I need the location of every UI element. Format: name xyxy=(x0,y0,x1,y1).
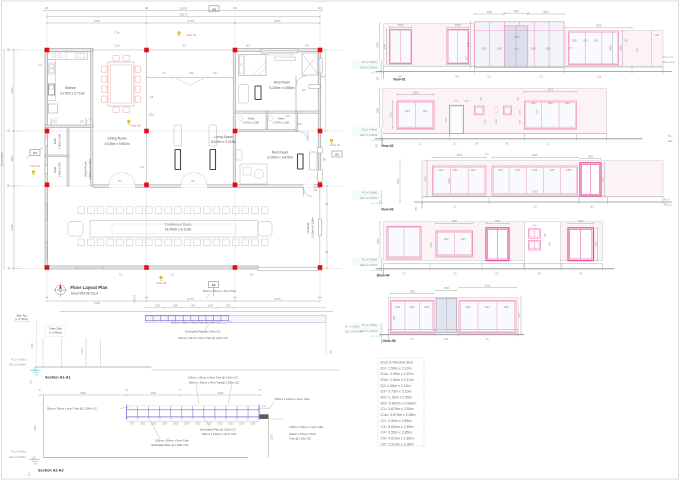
svg-text:2560: 2560 xyxy=(519,312,521,318)
svg-text:6400: 6400 xyxy=(80,392,86,395)
svg-text:EGL (± 0.00m): EGL (± 0.00m) xyxy=(360,263,377,267)
svg-text:6375: 6375 xyxy=(274,297,281,301)
svg-text:1000: 1000 xyxy=(239,424,245,426)
svg-text:D1a= 1.50m x 2.67m: D1a= 1.50m x 2.67m xyxy=(381,372,414,376)
svg-text:1.650m x 4.125m: 1.650m x 4.125m xyxy=(88,158,92,180)
svg-text:6.250m x 3.875m: 6.250m x 3.875m xyxy=(267,156,292,160)
svg-text:1050: 1050 xyxy=(409,307,415,309)
svg-text:Conference Room: Conference Room xyxy=(165,222,192,226)
svg-text:C2: C2 xyxy=(325,202,329,206)
svg-text:6775: 6775 xyxy=(188,297,195,301)
svg-text:D3: D3 xyxy=(314,188,318,192)
svg-text:EGL (± 0.00m): EGL (± 0.00m) xyxy=(360,329,377,333)
svg-text:700-600: 700-600 xyxy=(135,294,137,303)
svg-text:100mm x 50mm x 5mm: 100mm x 50mm x 5mm xyxy=(289,432,316,436)
svg-text:15720 16400: 15720 16400 xyxy=(1,151,4,166)
svg-text:EGL (± 0.00m): EGL (± 0.00m) xyxy=(360,196,377,200)
svg-text:1500: 1500 xyxy=(398,23,404,27)
svg-text:21075: 21075 xyxy=(179,6,187,10)
svg-text:1108: 1108 xyxy=(531,49,537,51)
svg-text:(+ 3.750m): (+ 3.750m) xyxy=(15,317,28,321)
svg-text:2.075x 1.250: 2.075x 1.250 xyxy=(243,121,260,125)
svg-text:1500: 1500 xyxy=(514,49,520,51)
svg-text:1160: 1160 xyxy=(594,41,600,43)
svg-text:C1a: C1a xyxy=(115,31,120,35)
svg-text:03: 03 xyxy=(233,6,237,10)
svg-text:2300: 2300 xyxy=(35,425,37,431)
svg-text:4.025m x 9.963m: 4.025m x 9.963m xyxy=(104,142,129,146)
svg-text:PL (+ 0.45m): PL (+ 0.45m) xyxy=(345,326,360,329)
svg-text:3875: 3875 xyxy=(596,25,602,28)
svg-text:C2: C2 xyxy=(325,250,329,254)
svg-text:1000: 1000 xyxy=(184,424,190,426)
svg-text:1185: 1185 xyxy=(498,170,504,172)
svg-text:1185: 1185 xyxy=(532,170,538,172)
svg-text:PL (+ 0.4: PL (+ 0.4 xyxy=(663,56,673,59)
svg-text:D1b: D1b xyxy=(189,71,194,75)
svg-text:1600: 1600 xyxy=(261,406,267,408)
svg-text:D3: D3 xyxy=(80,120,84,124)
svg-text:2540: 2540 xyxy=(384,43,386,49)
svg-text:C1= 3.875m x 2.55m: C1= 3.875m x 2.55m xyxy=(381,407,414,411)
svg-text:1000: 1000 xyxy=(151,424,157,426)
svg-text:2560: 2560 xyxy=(537,109,539,115)
svg-text:03: 03 xyxy=(233,296,237,300)
svg-text:PL (+ 0.45m): PL (+ 0.45m) xyxy=(12,358,27,362)
svg-text:2.075x 1.250: 2.075x 1.250 xyxy=(273,121,290,125)
svg-text:1000: 1000 xyxy=(195,424,201,426)
svg-text:Toilet: Toilet xyxy=(53,167,57,174)
svg-text:2460: 2460 xyxy=(394,315,396,321)
svg-text:02: 02 xyxy=(145,6,149,10)
svg-text:C1: C1 xyxy=(119,273,123,277)
svg-text:C2= 2.50m x 2.55m: C2= 2.50m x 2.55m xyxy=(381,419,412,423)
svg-text:1200: 1200 xyxy=(503,307,509,309)
svg-text:EGL (±: EGL (± xyxy=(664,204,672,207)
svg-text:2300: 2300 xyxy=(397,178,400,184)
svg-text:775: 775 xyxy=(130,423,135,426)
svg-text:EGL: EGL xyxy=(668,140,673,143)
svg-text:100mm x 50mm x 5mm Tube: 100mm x 50mm x 5mm Tube xyxy=(155,439,189,443)
svg-text:1100: 1100 xyxy=(461,239,467,241)
svg-text:PL (+ 0.45m): PL (+ 0.45m) xyxy=(362,60,377,64)
svg-text:D: D xyxy=(259,388,261,392)
svg-text:View-03: View-03 xyxy=(381,207,394,211)
svg-text:PL (+ 0.45m): PL (+ 0.45m) xyxy=(362,191,377,195)
svg-text:Veranda: Veranda xyxy=(306,222,310,233)
svg-text:Slab Top: Slab Top xyxy=(16,313,27,317)
svg-text:View 05: View 05 xyxy=(131,124,141,128)
svg-text:1213: 1213 xyxy=(484,307,490,309)
svg-text:1000: 1000 xyxy=(173,424,179,426)
svg-text:Living Space: Living Space xyxy=(214,135,233,139)
svg-text:W2: W2 xyxy=(298,122,302,126)
svg-text:Area=354.56 Sq.m: Area=354.56 Sq.m xyxy=(71,291,99,295)
svg-text:D3: D3 xyxy=(286,114,290,118)
svg-text:4000: 4000 xyxy=(151,392,157,395)
svg-text:C4: C4 xyxy=(140,165,144,169)
svg-text:1200: 1200 xyxy=(173,305,179,307)
svg-text:100mm x 50mm x 5mm Tube @ 1.00: 100mm x 50mm x 5mm Tube @ 1.00m C/C xyxy=(171,320,221,324)
svg-text:2500: 2500 xyxy=(451,220,457,223)
svg-text:6000: 6000 xyxy=(10,87,14,94)
svg-text:A1: A1 xyxy=(33,151,37,155)
svg-text:1500: 1500 xyxy=(455,23,461,27)
svg-text:100mm x 50mm x 5mm Tube @ 1.00: 100mm x 50mm x 5mm Tube @ 1.00m C/C xyxy=(178,336,228,340)
svg-text:View 01: View 01 xyxy=(186,33,196,37)
svg-text:Embedded Plate @ 1.265m C/C: Embedded Plate @ 1.265m C/C xyxy=(151,443,188,447)
svg-text:6.250m x 4.588m: 6.250m x 4.588m xyxy=(269,86,294,90)
svg-text:1155: 1155 xyxy=(453,170,459,172)
svg-text:1185: 1185 xyxy=(549,170,555,172)
svg-text:1000: 1000 xyxy=(228,424,234,426)
svg-text:1150: 1150 xyxy=(583,41,589,43)
svg-text:D3: D3 xyxy=(53,120,57,124)
svg-text:Wash Room: Wash Room xyxy=(84,161,88,177)
svg-text:1100: 1100 xyxy=(444,239,450,241)
svg-text:C3: C3 xyxy=(171,273,175,277)
svg-text:D2=1.00m x 2.10m: D2=1.00m x 2.10m xyxy=(381,384,411,388)
svg-text:D1b= 1.50m x 3.12m: D1b= 1.50m x 3.12m xyxy=(381,378,414,382)
svg-text:W1: W1 xyxy=(305,44,309,48)
svg-text:1200: 1200 xyxy=(155,305,161,307)
svg-text:4013: 4013 xyxy=(485,284,491,287)
svg-text:2460: 2460 xyxy=(610,44,612,50)
svg-text:2300: 2300 xyxy=(272,434,274,440)
svg-text:A2: A2 xyxy=(212,7,216,11)
svg-text:1160: 1160 xyxy=(531,103,537,105)
svg-text:01: 01 xyxy=(45,6,49,10)
svg-text:Rest Room: Rest Room xyxy=(274,81,291,85)
svg-text:D1: D1 xyxy=(191,179,195,183)
svg-text:EGL (± 0.0: EGL (± 0.0 xyxy=(663,61,675,64)
svg-text:04: 04 xyxy=(318,6,322,10)
svg-text:2513: 2513 xyxy=(487,11,493,14)
svg-text:Rest Room: Rest Room xyxy=(272,150,289,154)
svg-text:1500: 1500 xyxy=(578,220,584,223)
svg-text:3050: 3050 xyxy=(409,290,415,293)
svg-text:1200: 1200 xyxy=(208,305,214,307)
svg-text:Kitchen: Kitchen xyxy=(65,86,76,90)
svg-text:1000: 1000 xyxy=(250,424,256,426)
svg-text:6525: 6525 xyxy=(532,192,538,194)
svg-text:1185: 1185 xyxy=(515,170,521,172)
svg-text:1.125m x 6.138m: 1.125m x 6.138m xyxy=(311,217,315,239)
svg-text:View 02: View 02 xyxy=(30,164,40,168)
svg-text:6400: 6400 xyxy=(10,224,14,231)
svg-text:View 04: View 04 xyxy=(330,143,340,147)
svg-text:A: A xyxy=(39,388,41,392)
svg-text:C: C xyxy=(179,388,181,392)
svg-text:EGL (± 0.00m): EGL (± 0.00m) xyxy=(360,66,377,70)
svg-text:04: 04 xyxy=(318,296,322,300)
svg-text:1185: 1185 xyxy=(566,170,572,172)
svg-text:C1a: C1a xyxy=(597,76,602,78)
svg-text:C3= 6.525m x 2.55m: C3= 6.525m x 2.55m xyxy=(381,425,414,429)
svg-text:6025: 6025 xyxy=(514,36,520,39)
svg-text:C4= 3.55m x 2.85m: C4= 3.55m x 2.85m xyxy=(381,431,412,435)
svg-text:2500: 2500 xyxy=(413,91,419,94)
svg-text:2190: 2190 xyxy=(449,178,451,184)
svg-text:D1a: D1a xyxy=(444,339,449,341)
svg-text:EGL (± 0.00m): EGL (± 0.00m) xyxy=(345,331,361,334)
svg-text:4000: 4000 xyxy=(10,155,14,162)
svg-text:Floor Layout Plan: Floor Layout Plan xyxy=(70,285,107,290)
svg-text:1160: 1160 xyxy=(471,170,477,172)
svg-text:A2: A2 xyxy=(212,283,216,287)
svg-text:1160: 1160 xyxy=(439,170,445,172)
svg-text:View-01: View-01 xyxy=(393,78,406,82)
svg-text:D1= 1.50m x 2.10m: D1= 1.50m x 2.10m xyxy=(381,366,412,370)
svg-text:1500: 1500 xyxy=(485,118,487,124)
svg-text:3300: 3300 xyxy=(32,343,34,349)
svg-text:W1: W1 xyxy=(246,44,250,48)
svg-text:B: B xyxy=(126,388,128,392)
svg-text:1050: 1050 xyxy=(424,307,430,309)
svg-text:C5: C5 xyxy=(150,95,154,99)
svg-text:EGL (± 0.00m): EGL (± 0.00m) xyxy=(360,133,377,137)
svg-text:1100: 1100 xyxy=(423,111,429,113)
svg-text:W2= 0.600m x 0.900m: W2= 0.600m x 0.900m xyxy=(381,401,417,405)
svg-text:C1a: C1a xyxy=(115,44,120,48)
svg-text:3340: 3340 xyxy=(468,41,470,47)
svg-text:6525: 6525 xyxy=(532,154,538,157)
svg-text:7425: 7425 xyxy=(94,301,101,305)
svg-text:1150: 1150 xyxy=(548,103,554,105)
svg-text:1500: 1500 xyxy=(444,287,450,290)
svg-text:50mm x 50mm x 4mm Tube: 50mm x 50mm x 4mm Tube xyxy=(203,289,237,293)
svg-text:6000: 6000 xyxy=(218,392,224,395)
svg-text:1200: 1200 xyxy=(226,305,232,307)
svg-text:20575: 20575 xyxy=(180,12,188,16)
svg-text:View-04: View-04 xyxy=(377,273,390,277)
svg-text:2560: 2560 xyxy=(425,176,427,182)
svg-text:2.50mm x 50mm x 4mm Tube: 2.50mm x 50mm x 4mm Tube xyxy=(289,425,324,429)
svg-text:3.175m x 5.713m: 3.175m x 5.713m xyxy=(60,91,85,95)
svg-text:1160: 1160 xyxy=(565,103,571,105)
svg-text:1500: 1500 xyxy=(588,155,594,158)
svg-text:PL (+ 0.45m): PL (+ 0.45m) xyxy=(362,323,377,327)
svg-text:PL (+ 0.45m): PL (+ 0.45m) xyxy=(12,450,27,454)
svg-text:View-05: View-05 xyxy=(383,339,396,343)
svg-text:C6: C6 xyxy=(162,71,166,75)
svg-text:PL (+: PL (+ xyxy=(664,199,670,202)
svg-text:1.400x 2.000: 1.400x 2.000 xyxy=(58,133,62,149)
svg-text:2300: 2300 xyxy=(376,107,379,113)
svg-text:2513: 2513 xyxy=(543,11,549,14)
svg-text:B: B xyxy=(7,184,9,188)
svg-text:(+ 2.940m): (+ 2.940m) xyxy=(49,331,62,335)
svg-text:2300: 2300 xyxy=(431,242,433,248)
svg-text:D1a: D1a xyxy=(149,113,154,117)
svg-text:View 03: View 03 xyxy=(156,281,166,285)
svg-text:6375: 6375 xyxy=(274,19,281,23)
svg-text:3875: 3875 xyxy=(548,89,554,92)
svg-text:PL (+ 0.45m): PL (+ 0.45m) xyxy=(362,257,377,261)
svg-text:1500: 1500 xyxy=(496,118,498,124)
svg-text:C1a= 3.875m x 2.85m: C1a= 3.875m x 2.85m xyxy=(381,413,416,417)
svg-text:C2: C2 xyxy=(38,63,42,67)
svg-text:W1: W1 xyxy=(250,273,254,277)
svg-text:Dining Room: Dining Room xyxy=(107,137,126,141)
svg-text:2560: 2560 xyxy=(620,44,622,50)
svg-text:2940: 2940 xyxy=(637,47,639,53)
svg-text:2560: 2560 xyxy=(602,176,604,182)
svg-text:01: 01 xyxy=(45,296,49,300)
svg-text:7425: 7425 xyxy=(94,19,101,23)
svg-text:1050: 1050 xyxy=(395,307,401,309)
svg-text:02: 02 xyxy=(145,296,149,300)
svg-text:2300: 2300 xyxy=(376,41,379,47)
svg-text:200mm x 100mm x 9mm Tube: 200mm x 100mm x 9mm Tube xyxy=(275,397,311,401)
svg-text:C6= 2.513m x 3.30m: C6= 2.513m x 3.30m xyxy=(381,442,414,446)
svg-text:Flase Slab: Flase Slab xyxy=(49,326,62,330)
svg-text:6775: 6775 xyxy=(188,19,195,23)
svg-text:D2: D2 xyxy=(302,88,306,92)
svg-text:2560: 2560 xyxy=(595,241,597,247)
svg-text:1160: 1160 xyxy=(572,41,578,43)
svg-text:2100: 2100 xyxy=(82,348,84,354)
svg-text:1000: 1000 xyxy=(162,424,168,426)
svg-text:C6: C6 xyxy=(213,71,217,75)
svg-text:1200: 1200 xyxy=(465,307,471,309)
svg-text:1000: 1000 xyxy=(140,424,146,426)
svg-text:D3= 0.75m x 2.10m: D3= 0.75m x 2.10m xyxy=(381,390,412,394)
svg-text:1200: 1200 xyxy=(190,305,196,307)
svg-text:3875: 3875 xyxy=(456,154,462,157)
svg-text:6.025m x 9.013m: 6.025m x 9.013m xyxy=(211,140,236,144)
svg-text:1000: 1000 xyxy=(217,424,223,426)
svg-text:Tube @ 1.00m C/C: Tube @ 1.00m C/C xyxy=(289,436,311,440)
svg-text:100mm x 100mm x 9mm Tube: 100mm x 100mm x 9mm Tube xyxy=(201,432,237,436)
svg-text:1500: 1500 xyxy=(495,220,501,223)
svg-text:W1= 1.50m x 2.55m: W1= 1.50m x 2.55m xyxy=(381,396,413,400)
svg-text:1108: 1108 xyxy=(482,49,488,51)
svg-text:C5= 4.013m x 2.85m: C5= 4.013m x 2.85m xyxy=(381,436,414,440)
svg-text:18.950m x 6.113m: 18.950m x 6.113m xyxy=(165,228,192,232)
svg-text:Section A1-A1: Section A1-A1 xyxy=(45,376,71,380)
svg-text:2300: 2300 xyxy=(377,238,380,244)
svg-text:EGL (± 0.00m): EGL (± 0.00m) xyxy=(9,455,26,459)
svg-text:1100: 1100 xyxy=(405,111,411,113)
svg-text:1108: 1108 xyxy=(546,49,552,51)
svg-text:1.400x 2.000: 1.400x 2.000 xyxy=(58,162,62,178)
svg-text:100mm x 50mm x 4mm Tube@ 1.200: 100mm x 50mm x 4mm Tube@ 1.200m C/C xyxy=(189,380,240,384)
svg-text:A1: A1 xyxy=(335,153,339,157)
svg-text:2560: 2560 xyxy=(520,109,522,115)
svg-text:2100: 2100 xyxy=(446,117,448,123)
svg-text:Section A2-A2: Section A2-A2 xyxy=(38,468,64,472)
svg-text:Embedded Plate @ 1.00m C/C: Embedded Plate @ 1.00m C/C xyxy=(185,329,221,333)
svg-text:100mm x 50mm x 5mm Tube @ 1.00: 100mm x 50mm x 5mm Tube @ 1.00m C/C xyxy=(188,375,238,379)
svg-text:Toilet: Toilet xyxy=(53,138,57,145)
svg-text:Embedded Plate @ 1.00m C/C: Embedded Plate @ 1.00m C/C xyxy=(200,427,236,431)
svg-text:1500: 1500 xyxy=(513,10,519,13)
svg-text:Door & Window Size: Door & Window Size xyxy=(381,360,414,364)
svg-text:PL (: PL ( xyxy=(668,135,672,138)
svg-text:50mm x 50mm x 4mm Tube @ 1.200: 50mm x 50mm x 4mm Tube @ 1.200m C/C xyxy=(47,406,97,410)
svg-text:D1: D1 xyxy=(118,179,122,183)
svg-text:2560: 2560 xyxy=(390,111,392,117)
svg-text:1108: 1108 xyxy=(497,49,503,51)
svg-text:D3: D3 xyxy=(182,44,186,48)
svg-text:PL (+ 0.45m): PL (+ 0.45m) xyxy=(362,127,377,131)
svg-text:EGL (± 0.00m): EGL (± 0.00m) xyxy=(9,363,26,367)
